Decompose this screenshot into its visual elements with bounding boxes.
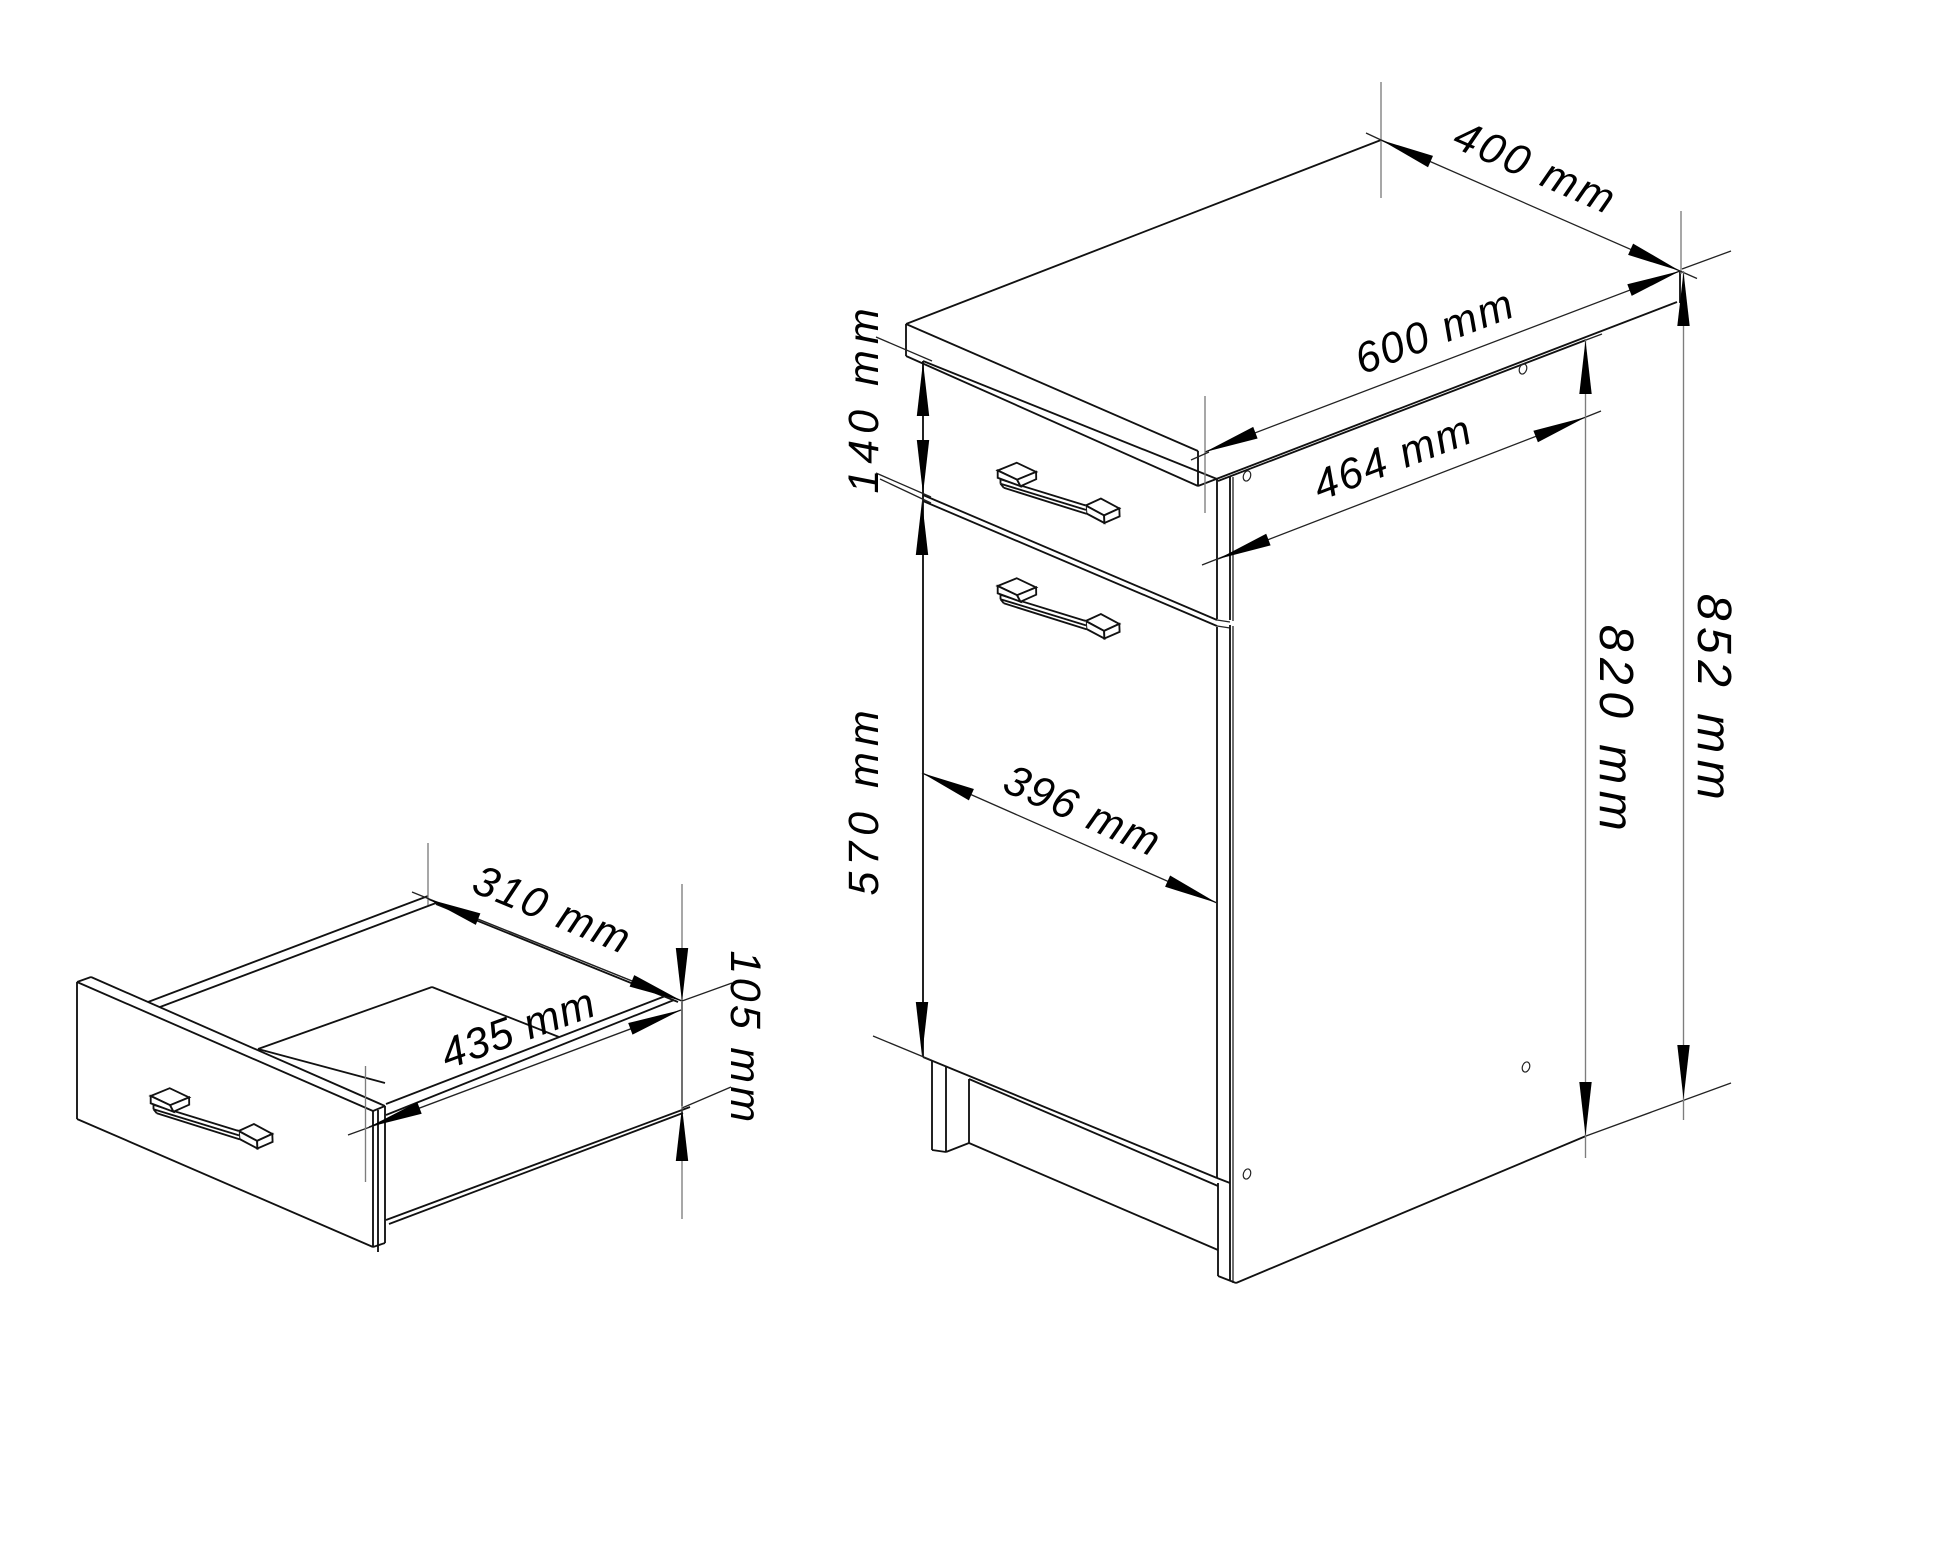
svg-text:140 mm: 140 mm	[840, 302, 888, 493]
svg-text:570 mm: 570 mm	[840, 704, 888, 895]
svg-text:105 mm: 105 mm	[721, 950, 769, 1125]
svg-text:820 mm: 820 mm	[1589, 625, 1642, 837]
svg-text:852 mm: 852 mm	[1687, 594, 1740, 806]
